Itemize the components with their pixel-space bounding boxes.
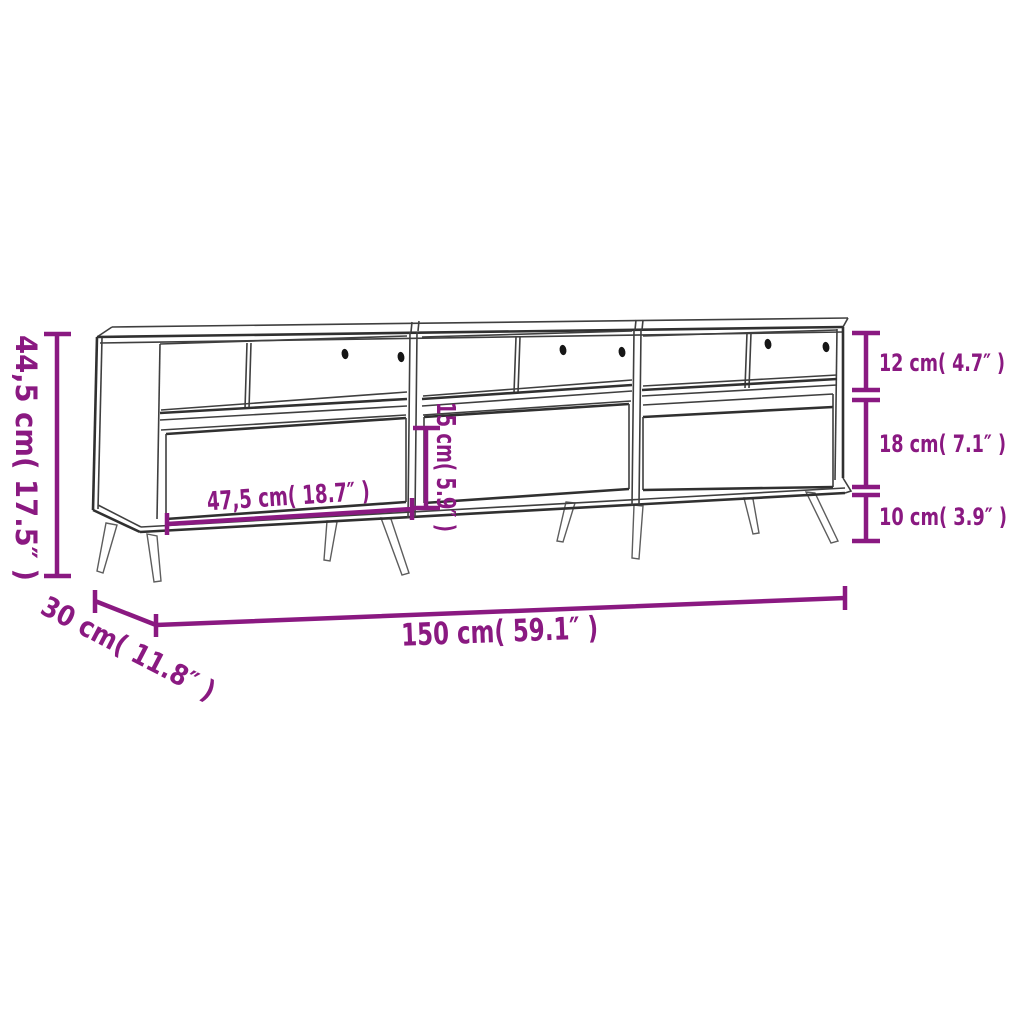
dimension-diagram: 44,5 cm( 17.5″ ) 30 cm( 11.8″ ) 150 cm( …	[0, 0, 1024, 1024]
open-compartment-3	[642, 330, 837, 407]
dimension-depth: 30 cm( 11.8″ )	[36, 590, 222, 708]
cabinet-left-side	[93, 337, 141, 532]
cable-hole	[822, 341, 830, 352]
cable-hole	[764, 338, 772, 349]
dimension-top-opening-height: 12 cm( 4.7″ )	[852, 333, 1005, 390]
leg	[147, 534, 161, 582]
top-opening-height-label: 12 cm( 4.7″ )	[879, 349, 1005, 377]
cable-hole	[618, 346, 626, 357]
leg-height-label: 10 cm( 3.9″ )	[879, 503, 1007, 531]
cabinet-top-face	[97, 318, 848, 343]
dimension-drawer-front-height: 18 cm( 7.1″ )	[852, 400, 1006, 487]
cabinet-line-drawing	[93, 318, 851, 582]
dimension-overall-width: 150 cm( 59.1″ )	[156, 586, 845, 654]
open-compartment-1	[160, 336, 407, 430]
cable-hole	[397, 351, 405, 362]
drawer-3	[643, 407, 833, 490]
depth-label: 30 cm( 11.8″ )	[36, 590, 222, 708]
product-dimension-image: 44,5 cm( 17.5″ ) 30 cm( 11.8″ ) 150 cm( …	[0, 0, 1024, 1024]
leg	[806, 492, 838, 543]
dimension-overall-height: 44,5 cm( 17.5″ )	[9, 334, 71, 581]
dimension-drawer-width: 47,5 cm( 18.7″ )	[167, 477, 412, 535]
overall-width-label: 150 cm( 59.1″ )	[400, 610, 598, 654]
leg	[632, 505, 643, 559]
leg	[744, 498, 759, 534]
leg	[324, 521, 337, 561]
cable-hole	[559, 344, 567, 355]
cable-hole	[341, 348, 349, 359]
drawer-front-height-label: 18 cm( 7.1″ )	[879, 430, 1006, 458]
middle-opening-height-label: 15 cm( 5.9″ )	[430, 402, 460, 532]
overall-height-label: 44,5 cm( 17.5″ )	[9, 335, 43, 581]
leg	[381, 518, 409, 575]
dimension-leg-height: 10 cm( 3.9″ )	[852, 495, 1007, 541]
dimension-middle-opening-height: 15 cm( 5.9″ )	[413, 402, 460, 532]
leg	[97, 523, 117, 573]
